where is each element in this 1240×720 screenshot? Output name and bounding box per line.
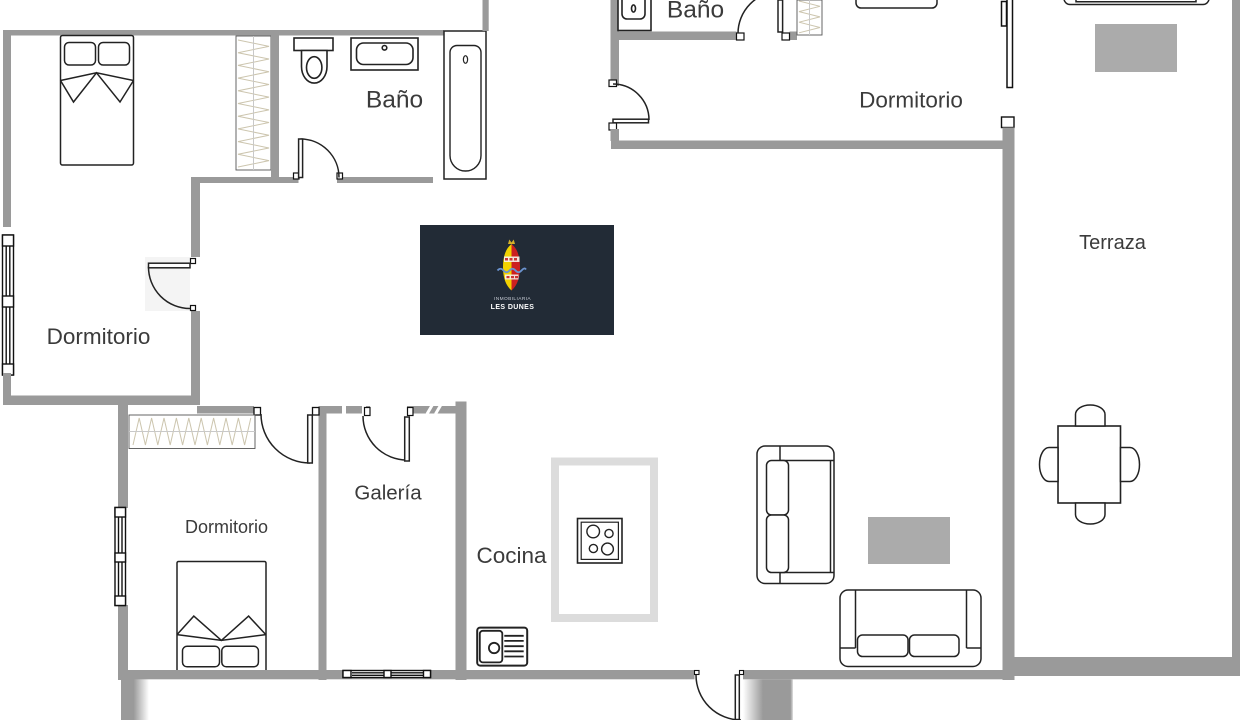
svg-text:INMOBILIARIA: INMOBILIARIA <box>494 296 531 302</box>
svg-text:Cocina: Cocina <box>476 543 547 568</box>
svg-text:Baño: Baño <box>366 87 423 114</box>
svg-text:Baño: Baño <box>667 0 724 24</box>
svg-text:Dormitorio: Dormitorio <box>185 517 268 537</box>
svg-text:LES DUNES: LES DUNES <box>491 304 535 311</box>
svg-text:Galería: Galería <box>354 482 422 505</box>
svg-text:Dormitorio: Dormitorio <box>859 88 963 113</box>
svg-text:Terraza: Terraza <box>1079 232 1147 254</box>
svg-text:Dormitorio: Dormitorio <box>47 324 151 349</box>
